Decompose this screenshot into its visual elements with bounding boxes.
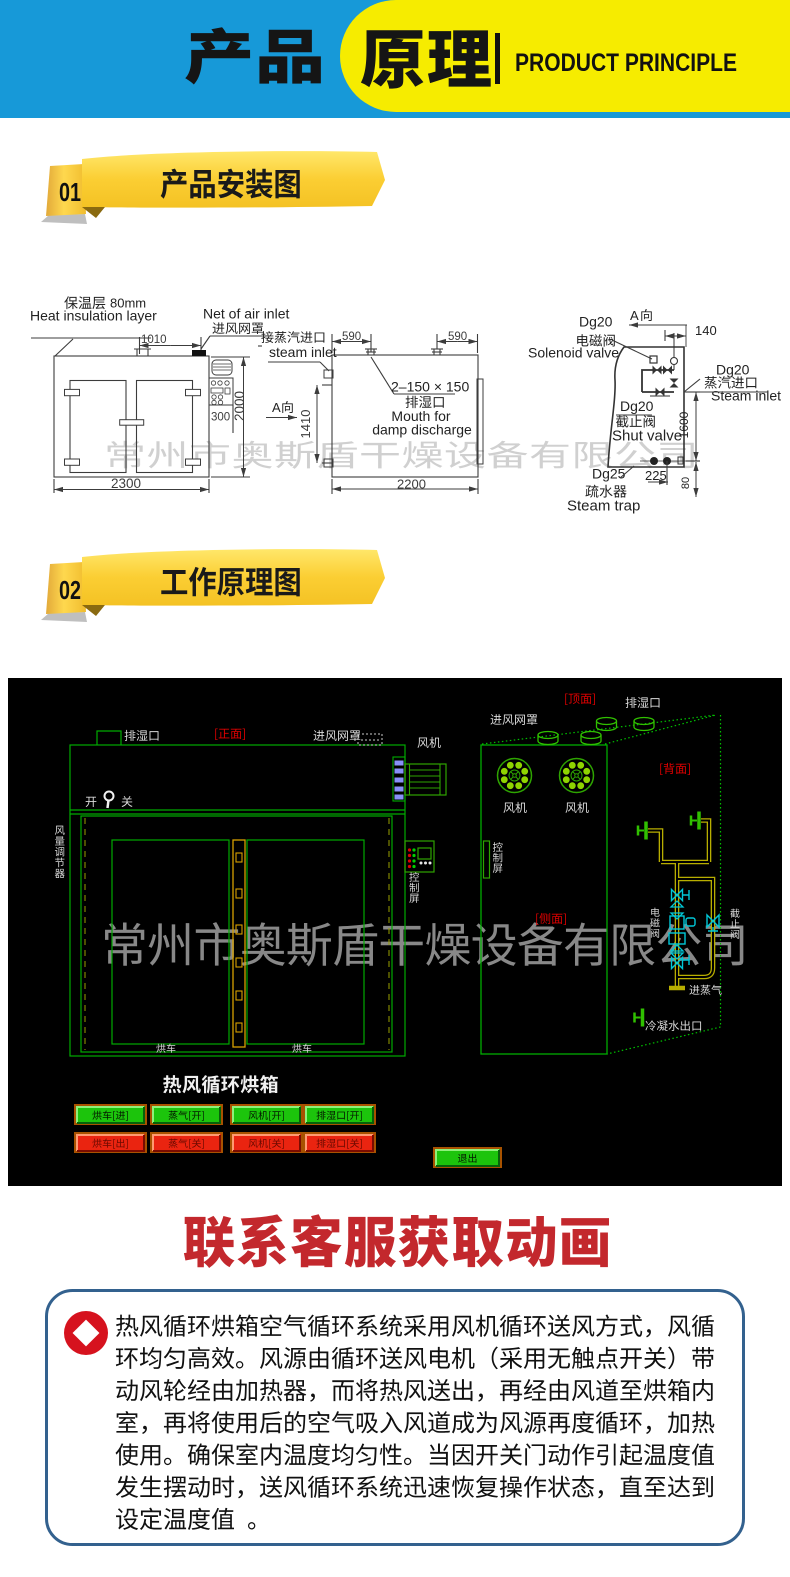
svg-text:A: A <box>630 308 639 323</box>
svg-text:80: 80 <box>680 477 692 489</box>
svg-text:2200: 2200 <box>397 477 426 492</box>
svg-text:damp discharge: damp discharge <box>372 422 472 438</box>
svg-text:Steam trap: Steam trap <box>567 498 640 515</box>
svg-text:02: 02 <box>59 575 81 605</box>
svg-text:Solenoid valve: Solenoid valve <box>528 345 619 361</box>
svg-text:Heat insulation layer: Heat insulation layer <box>30 308 157 324</box>
svg-text:PRODUCT PRINCIPLE: PRODUCT PRINCIPLE <box>515 49 737 77</box>
svg-text:Dg20: Dg20 <box>620 398 654 414</box>
svg-text:1010: 1010 <box>141 334 167 346</box>
svg-text:1600: 1600 <box>677 411 691 438</box>
svg-text:Shut valve: Shut valve <box>612 428 682 445</box>
svg-text:01: 01 <box>59 177 81 207</box>
svg-text:steam inlet: steam inlet <box>269 344 337 360</box>
svg-text:Dg20: Dg20 <box>579 314 613 330</box>
svg-text:590: 590 <box>448 331 467 343</box>
svg-text:300: 300 <box>211 412 230 424</box>
svg-text:2–150 × 150: 2–150 × 150 <box>391 379 469 395</box>
svg-text:2300: 2300 <box>111 476 141 491</box>
svg-text:A: A <box>272 400 281 415</box>
svg-text:140: 140 <box>695 323 717 338</box>
svg-text:Dg25: Dg25 <box>592 466 626 482</box>
svg-text:1410: 1410 <box>298 410 313 439</box>
svg-text:Dg20: Dg20 <box>716 362 750 378</box>
svg-text:Net of air inlet: Net of air inlet <box>203 306 289 322</box>
svg-text:Steam inlet: Steam inlet <box>711 388 781 404</box>
svg-text:590: 590 <box>342 331 361 343</box>
svg-text:2000: 2000 <box>232 391 247 421</box>
